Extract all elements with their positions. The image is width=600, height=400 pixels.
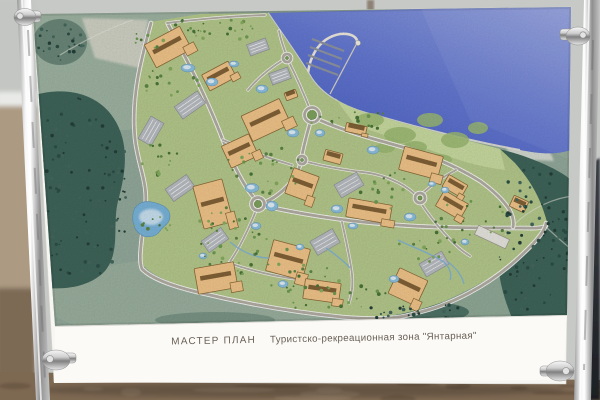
caption-strip: МАСТЕР ПЛАН Туристско-рекреационная зона… — [54, 315, 567, 383]
photo-of-masterplan-billboard: МАСТЕР ПЛАН Туристско-рекреационная зона… — [0, 0, 600, 400]
caption-title: МАСТЕР ПЛАН — [171, 335, 256, 348]
board-shadow — [35, 383, 565, 397]
map-illustration — [0, 0, 600, 360]
